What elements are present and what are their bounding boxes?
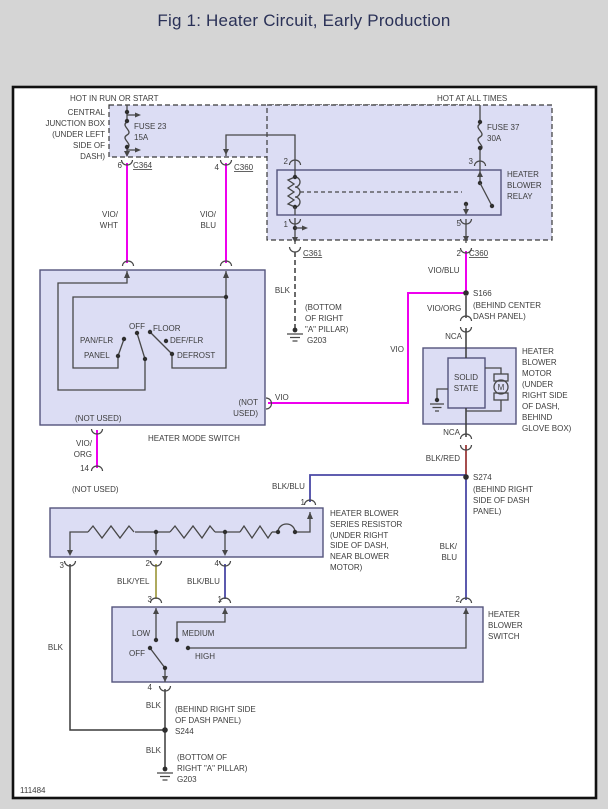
resistor-label-3: (UNDER RIGHT: [330, 531, 388, 540]
pin-4: 4: [215, 163, 220, 172]
wire-nca-top: NCA: [445, 332, 463, 341]
s244-loc-2: OF DASH PANEL): [175, 716, 241, 725]
resistor-pin-2: 2: [146, 559, 151, 568]
splice-s274-dot: [463, 474, 469, 480]
wire-vio-vert: VIO: [390, 345, 404, 354]
wire-blk-blu-mid: BLK/BLU: [187, 577, 220, 586]
wire-blk-switch: BLK: [146, 701, 162, 710]
splice-s244-dot: [162, 727, 168, 733]
heater-mode-switch-box: [40, 270, 265, 425]
motor-label-6: OF DASH,: [522, 402, 560, 411]
conn-c364: C364: [133, 161, 153, 170]
wire-vio-wht-1: VIO/: [102, 210, 119, 219]
blower-switch-label-3: SWITCH: [488, 632, 520, 641]
g203-mid-loc-2: OF RIGHT: [305, 314, 343, 323]
wire-blk-red: BLK/RED: [426, 454, 460, 463]
splice-s166: S166: [473, 289, 492, 298]
pos-def-flr: DEF/FLR: [170, 336, 204, 345]
pos-high: HIGH: [195, 652, 215, 661]
resistor-pin-3: 3: [60, 561, 65, 570]
motor-label-4: (UNDER: [522, 380, 553, 389]
solid-state-module-box: [448, 358, 485, 408]
resistor-pin-4: 4: [215, 559, 220, 568]
pin-14: 14: [80, 464, 89, 473]
wire-vio-blu-left-2: BLU: [200, 221, 216, 230]
resistor-label-6: MOTOR): [330, 563, 363, 572]
wire-vio-org-left-1: VIO/: [76, 439, 93, 448]
pos-floor: FLOOR: [153, 324, 181, 333]
wire-vio-blu-right: VIO/BLU: [428, 266, 460, 275]
wire-vio-org-left-2: ORG: [74, 450, 92, 459]
fuse37-rating: 30A: [487, 134, 502, 143]
g203-bot-loc-1: (BOTTOM OF: [177, 753, 227, 762]
g203-mid-loc-3: "A" PILLAR): [305, 325, 349, 334]
pin-6: 6: [118, 161, 123, 170]
conn-c360-right: C360: [469, 249, 489, 258]
pos-medium: MEDIUM: [182, 629, 215, 638]
splice-s244: S244: [175, 727, 194, 736]
pos-off-blower: OFF: [129, 649, 145, 658]
g203-mid-loc-1: (BOTTOM: [305, 303, 342, 312]
conn-c361: C361: [303, 249, 323, 258]
pos-panel: PANEL: [84, 351, 110, 360]
motor-m: M: [498, 383, 505, 392]
resistor-label-5: NEAR BLOWER: [330, 552, 389, 561]
relay-pin-3: 3: [469, 157, 474, 166]
hot-at-all-times: HOT AT ALL TIMES: [437, 94, 507, 103]
fuse23-name: FUSE 23: [134, 122, 167, 131]
switch-pin-2: 2: [456, 595, 461, 604]
splice-s166-dot: [463, 290, 469, 296]
s166-loc-2: DASH PANEL): [473, 312, 526, 321]
s274-loc-2: SIDE OF DASH: [473, 496, 530, 505]
resistor-label-4: SIDE OF DASH,: [330, 541, 389, 550]
s166-loc-1: (BEHIND CENTER: [473, 301, 541, 310]
cjb-line-3: (UNDER LEFT: [52, 130, 105, 139]
series-resistor-box: [50, 508, 323, 557]
blower-switch-label-2: BLOWER: [488, 621, 523, 630]
fuse23-rating: 15A: [134, 133, 149, 142]
mode-switch-name: HEATER MODE SWITCH: [148, 434, 240, 443]
motor-label-2: BLOWER: [522, 358, 557, 367]
wire-blk-long: BLK: [48, 643, 64, 652]
motor-label-8: GLOVE BOX): [522, 424, 572, 433]
fuse37-name: FUSE 37: [487, 123, 520, 132]
motor-label-1: HEATER: [522, 347, 554, 356]
solid-state-1: SOLID: [454, 373, 478, 382]
mode-not-used-right-2: USED): [233, 409, 258, 418]
s244-loc-1: (BEHIND RIGHT SIDE: [175, 705, 256, 714]
wire-vio-org-right: VIO/ORG: [427, 304, 461, 313]
cjb-line-4: SIDE OF: [73, 141, 105, 150]
relay-label-3: RELAY: [507, 192, 533, 201]
wire-nca-bottom: NCA: [443, 428, 461, 437]
blower-switch-label-1: HEATER: [488, 610, 520, 619]
mode-not-used-bottom: (NOT USED): [72, 485, 119, 494]
wire-vio-blu-left-1: VIO/: [200, 210, 217, 219]
switch-pin-3: 3: [148, 595, 153, 604]
figure-number: 111484: [20, 786, 46, 795]
s274-loc-1: (BEHIND RIGHT: [473, 485, 533, 494]
pos-off-mode: OFF: [129, 322, 145, 331]
resistor-label-1: HEATER BLOWER: [330, 509, 399, 518]
conn-c360-top: C360: [234, 163, 254, 172]
motor-label-7: BEHIND: [522, 413, 552, 422]
cjb-line-1: CENTRAL: [68, 108, 106, 117]
switch-pin-4: 4: [148, 683, 153, 692]
wire-blk-s244: BLK: [146, 746, 162, 755]
wire-blk-c361: BLK: [275, 286, 291, 295]
splice-s274: S274: [473, 473, 492, 482]
relay-label-2: BLOWER: [507, 181, 542, 190]
relay-label-1: HEATER: [507, 170, 539, 179]
pos-defrost: DEFROST: [177, 351, 215, 360]
resistor-label-2: SERIES RESISTOR: [330, 520, 403, 529]
relay-pin-2: 2: [284, 157, 289, 166]
wire-blk-blu-vert-1: BLK/: [440, 542, 458, 551]
g203-bot-loc-2: RIGHT "A" PILLAR): [177, 764, 248, 773]
cjb-line-5: DASH): [80, 152, 105, 161]
wire-vio-exit: VIO: [275, 393, 289, 402]
relay-pin-5: 5: [457, 219, 462, 228]
pin-2-c360: 2: [457, 249, 462, 258]
g203-mid: G203: [307, 336, 327, 345]
solid-state-2: STATE: [454, 384, 479, 393]
heater-blower-switch-box: [112, 607, 483, 682]
resistor-pin-1: 1: [301, 498, 306, 507]
mode-not-used-inside: (NOT USED): [75, 414, 122, 423]
pos-pan-flr: PAN/FLR: [80, 336, 113, 345]
wire-vio-wht-2: WHT: [100, 221, 118, 230]
mode-not-used-right-1: (NOT: [238, 398, 258, 407]
wire-blk-yel: BLK/YEL: [117, 577, 150, 586]
switch-pin-1: 1: [218, 595, 223, 604]
g203-bot: G203: [177, 775, 197, 784]
relay-pin-1: 1: [284, 220, 289, 229]
s274-loc-3: PANEL): [473, 507, 502, 516]
pos-low: LOW: [132, 629, 151, 638]
wire-blk-blu-top: BLK/BLU: [272, 482, 305, 491]
wire-blk-blu-vert-2: BLU: [441, 553, 457, 562]
motor-label-3: MOTOR: [522, 369, 552, 378]
motor-label-5: RIGHT SIDE: [522, 391, 568, 400]
cjb-line-2: JUNCTION BOX: [45, 119, 105, 128]
wiring-diagram: HOT IN RUN OR STARTHOT AT ALL TIMESCENTR…: [0, 0, 608, 809]
hot-in-run-or-start: HOT IN RUN OR START: [70, 94, 159, 103]
